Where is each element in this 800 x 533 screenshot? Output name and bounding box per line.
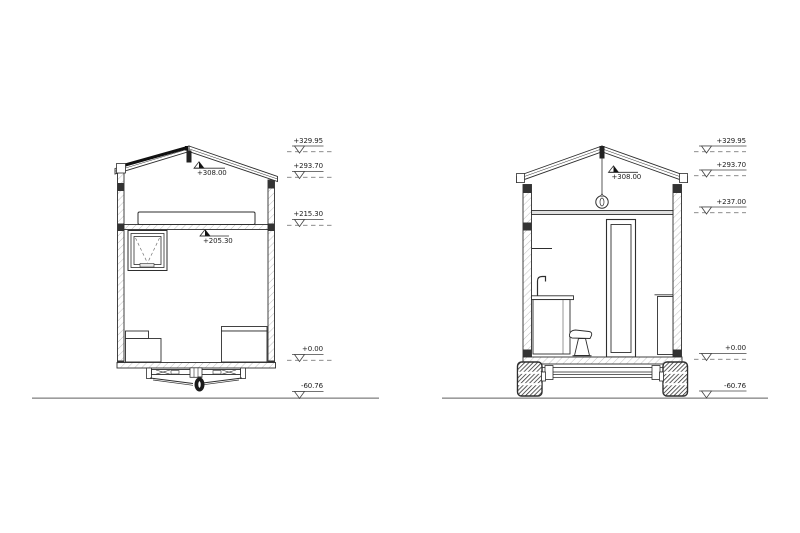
elevation-marker	[287, 146, 333, 153]
elevation-marker	[699, 391, 747, 398]
ridge-post	[600, 146, 605, 159]
pendant-lamp	[596, 158, 608, 208]
elevation-label: +215.30	[263, 210, 323, 218]
elevation-label: +293.70	[263, 162, 323, 170]
ceiling-band	[532, 211, 674, 215]
left-elevation-markers	[287, 146, 333, 398]
elevation-marker	[694, 146, 747, 153]
level-flag-label: +205.30	[203, 237, 233, 245]
elevation-label: +0.00	[686, 344, 746, 352]
door	[607, 220, 636, 358]
faucet	[538, 277, 546, 296]
level-flag-ridge-right	[609, 166, 639, 172]
elevation-label: -60.76	[686, 382, 746, 390]
drawing-canvas: +329.95 +293.70 +215.30 +0.00 -60.76 +32…	[0, 0, 800, 533]
elevation-label: +329.95	[686, 137, 746, 145]
left-section	[115, 146, 278, 392]
elevation-marker	[287, 220, 333, 227]
elevation-marker	[694, 170, 747, 177]
level-flag-label: +308.00	[197, 169, 227, 177]
kitchen-counter	[532, 277, 574, 355]
chair	[569, 330, 591, 356]
jockey-wheel	[195, 377, 205, 392]
elevation-marker	[694, 354, 747, 361]
bench-left	[126, 331, 162, 362]
section-drawings	[0, 0, 800, 533]
elevation-label: +0.00	[263, 345, 323, 353]
elevation-marker	[287, 355, 333, 362]
level-flag-loft	[200, 230, 229, 236]
elevation-label: +329.95	[263, 137, 323, 145]
elevation-label: -60.76	[263, 382, 323, 390]
wheel-left	[518, 362, 546, 396]
level-flag-ridge-left	[194, 162, 225, 168]
chassis-rails	[541, 366, 664, 380]
loft-mattress	[138, 212, 255, 225]
elevation-marker	[287, 172, 333, 179]
drawbar-assembly	[147, 368, 246, 392]
eave-cap	[117, 164, 126, 174]
elevation-label: +293.70	[686, 161, 746, 169]
tall-cabinet	[655, 295, 674, 355]
elevation-label: +237.00	[686, 198, 746, 206]
level-flag-label: +308.00	[612, 173, 642, 181]
elevation-marker	[292, 392, 324, 399]
window	[128, 231, 167, 271]
elevation-marker	[694, 207, 747, 214]
ridge-post	[187, 151, 192, 163]
loft-floor	[124, 212, 268, 230]
floor-deck	[117, 363, 276, 369]
right-section	[517, 146, 688, 396]
wheel-right	[660, 362, 688, 396]
floor-deck	[523, 357, 682, 364]
bench-right	[222, 327, 268, 363]
right-elevation-markers	[694, 146, 747, 398]
